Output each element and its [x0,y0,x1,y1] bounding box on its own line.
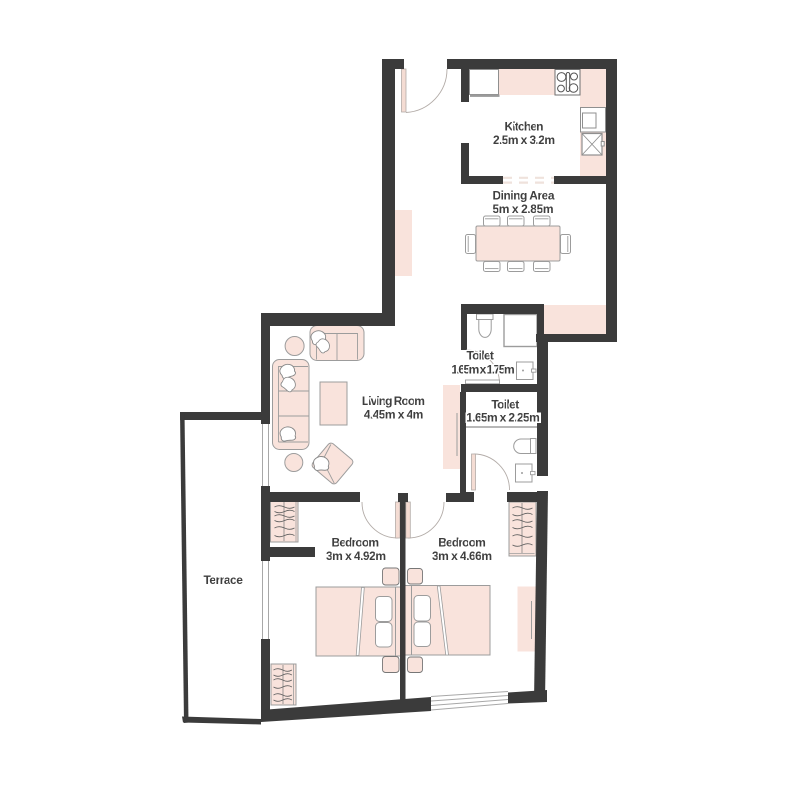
svg-text:3m x 4.66m: 3m x 4.66m [432,549,492,563]
svg-text:Living Room: Living Room [362,394,425,408]
svg-text:1.65m x 1.75m: 1.65m x 1.75m [451,362,514,376]
svg-text:3m x 4.92m: 3m x 4.92m [326,549,386,563]
svg-text:5m x 2.85m: 5m x 2.85m [493,202,554,216]
svg-text:Bedroom: Bedroom [332,535,380,549]
svg-text:4.45m x 4m: 4.45m x 4m [364,408,424,422]
svg-text:Kitchen: Kitchen [505,119,544,133]
svg-text:Terrace: Terrace [204,573,244,587]
svg-text:Bedroom: Bedroom [438,535,486,549]
svg-text:Toilet: Toilet [467,349,494,363]
svg-text:Dining Area: Dining Area [493,188,555,202]
svg-text:1.65m x 2.25m: 1.65m x 2.25m [466,410,540,424]
svg-text:2.5m x 3.2m: 2.5m x 3.2m [493,133,555,147]
